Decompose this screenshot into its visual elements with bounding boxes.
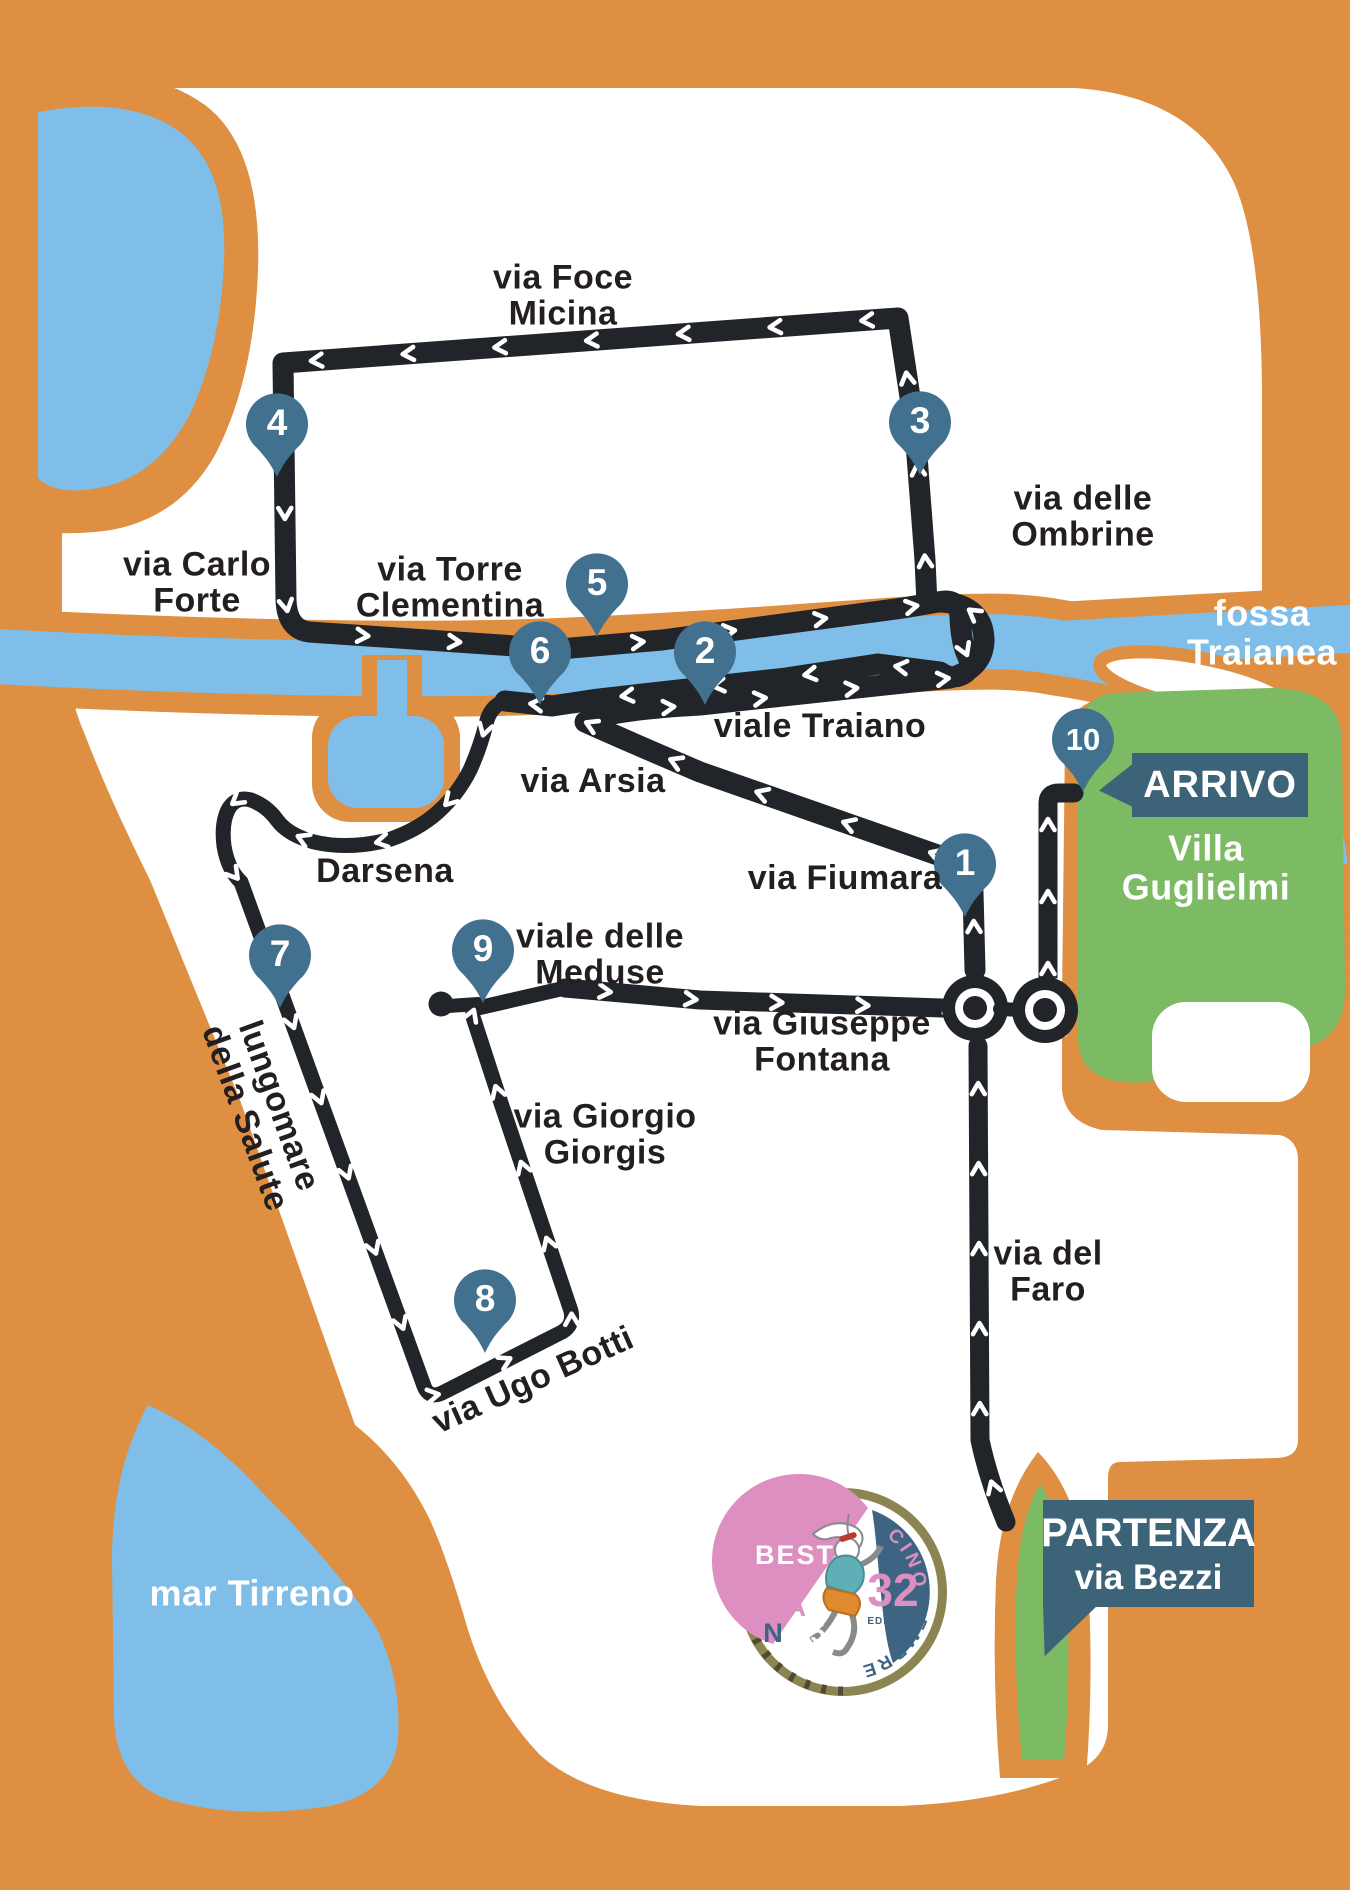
roundabout-east: [1012, 977, 1078, 1043]
finish-callout: ARRIVO: [1132, 753, 1308, 817]
finish-label: ARRIVO: [1143, 764, 1297, 807]
start-callout: PARTENZA via Bezzi: [1043, 1500, 1254, 1607]
street-label-meduse: viale delle Meduse: [516, 919, 684, 992]
street-label-traiano: viale Traiano: [714, 708, 927, 744]
sea-label: mar Tirreno: [150, 1575, 355, 1614]
marker-number: 6: [530, 630, 551, 671]
logo-year: '25: [789, 1618, 825, 1648]
marker-number: 8: [475, 1278, 496, 1319]
street-label-torre-clementina: via Torre Clementina: [356, 552, 544, 625]
street-label-fontana: via Giuseppe Fontana: [713, 1006, 931, 1079]
park-clearing: [1152, 1002, 1310, 1102]
start-label: PARTENZA: [1041, 1509, 1256, 1557]
street-label-arsia: via Arsia: [521, 763, 666, 799]
map-stage: 12345678910 BEST WO MA N '25 32 EDIZIO: [0, 0, 1350, 1890]
villa-guglielmi-label: Villa Guglielmi: [1122, 829, 1291, 906]
marker-number: 9: [473, 928, 494, 969]
street-label-carlo-forte: via Carlo Forte: [123, 547, 271, 620]
start-street: via Bezzi: [1075, 1557, 1223, 1599]
meduse-turn-dot: [429, 992, 454, 1017]
street-label-faro: via del Faro: [993, 1236, 1102, 1309]
area-label-darsena: Darsena: [316, 853, 454, 889]
marker-number: 10: [1066, 722, 1100, 757]
marker-number: 5: [587, 562, 608, 603]
street-label-giorgis: via Giorgio Giorgis: [513, 1099, 696, 1172]
marker-number: 2: [695, 630, 716, 671]
street-label-fiumara: via Fiumara: [748, 860, 942, 896]
street-label-foce-micina: via Foce Micina: [493, 260, 633, 333]
river-label: fossa Traianea: [1187, 594, 1337, 671]
marker-number: 7: [270, 933, 291, 974]
race-course-map-page: { "map": { "colors": { "orange": "#DE8F4…: [0, 0, 1350, 1890]
marker-number: 4: [267, 402, 288, 443]
marker-number: 1: [955, 842, 976, 883]
logo-n: N: [763, 1618, 783, 1648]
marker-number: 3: [910, 400, 931, 441]
street-label-ombrine: via delle Ombrine: [950, 481, 1217, 554]
